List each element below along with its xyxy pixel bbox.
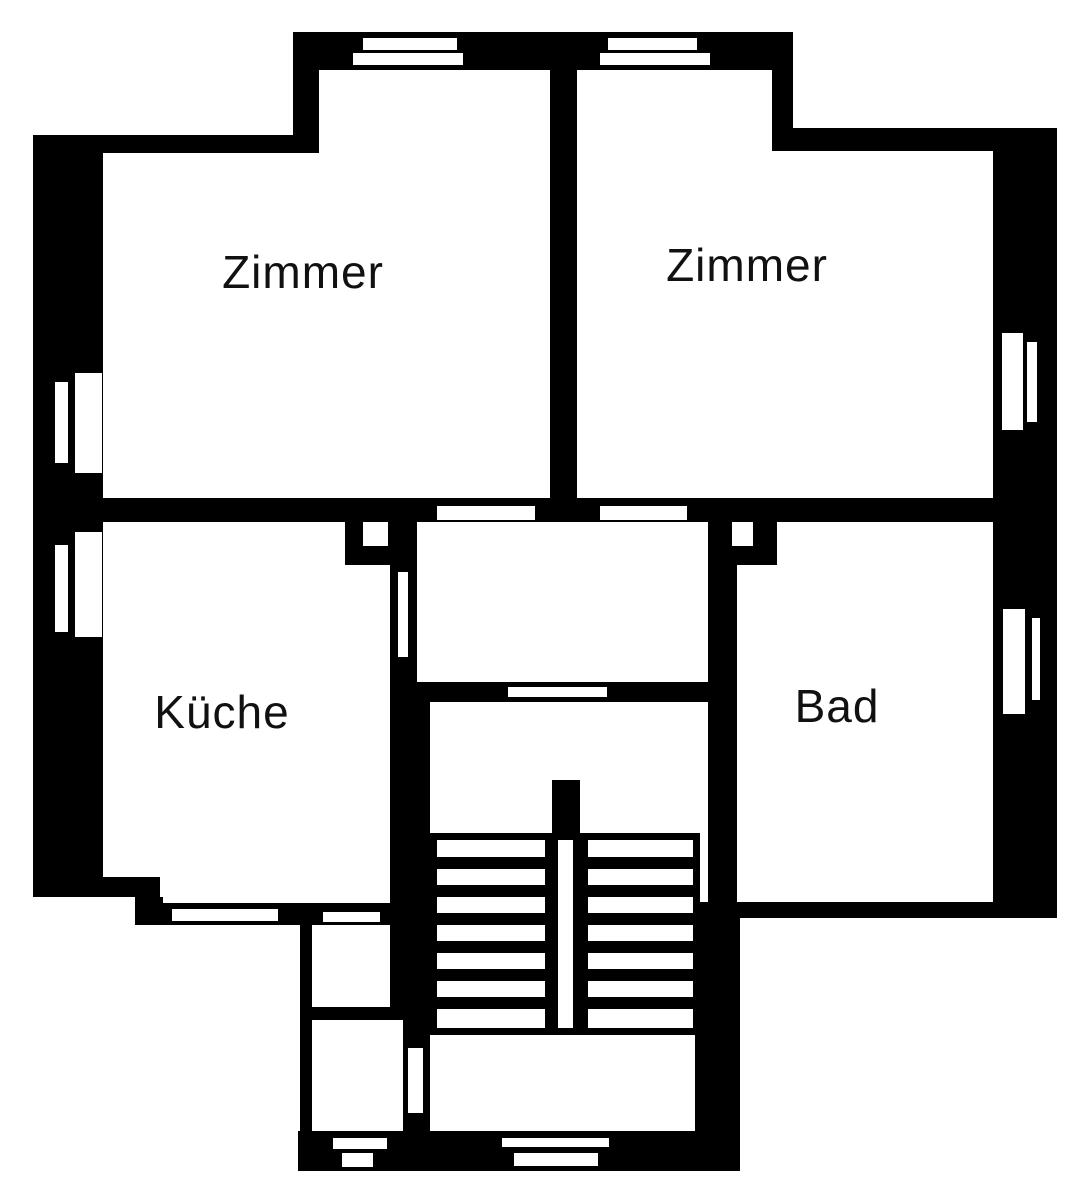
- window-right-upper-inner: [1002, 333, 1023, 430]
- wall-left-outer: [33, 135, 103, 897]
- stair-tread-line: [588, 969, 693, 981]
- door-vestibule-entrance-inner: [342, 1153, 373, 1167]
- stair-tread-line: [588, 941, 693, 953]
- wall-right-outer: [993, 128, 1057, 918]
- wall-vestibule-divider: [300, 1007, 404, 1020]
- stair-tread-line: [437, 941, 545, 953]
- door-zimmer-left: [437, 506, 535, 520]
- stair-frame-mid-right: [573, 833, 588, 1035]
- room-label-kueche: Küche: [154, 685, 289, 739]
- stair-frame-left: [430, 833, 437, 1035]
- wall-stair-west-upper: [390, 702, 430, 1020]
- window-left-upper-inner: [75, 373, 102, 473]
- room-label-zimmer-right: Zimmer: [666, 238, 828, 292]
- window-right-lower-inner: [1003, 609, 1025, 714]
- door-kueche: [398, 572, 408, 657]
- wall-zimmer-divider: [550, 70, 577, 498]
- door-vestibule-stairs: [408, 1048, 423, 1113]
- floor-plan: Zimmer Zimmer Küche Bad: [0, 0, 1085, 1200]
- wall-zimmer-bottom: [103, 498, 993, 522]
- wall-bad-west: [708, 565, 737, 918]
- door-vestibule-entrance-outer: [333, 1138, 387, 1149]
- window-left-lower-outer: [55, 545, 68, 632]
- window-top-right-inner: [600, 53, 710, 65]
- wall-protrusion-left: [293, 32, 319, 135]
- stair-frame-top: [430, 833, 700, 840]
- wall-bad-south: [700, 902, 993, 918]
- room-label-zimmer-left: Zimmer: [222, 245, 384, 299]
- wall-right-top: [772, 128, 997, 151]
- stair-tread-line: [437, 913, 545, 925]
- door-zimmer-right: [600, 506, 687, 520]
- stair-tread-line: [588, 997, 693, 1009]
- stair-tread-line: [437, 857, 545, 869]
- window-top-right-outer: [608, 38, 697, 50]
- window-left-lower-inner: [75, 532, 102, 637]
- stair-frame-bottom: [430, 1028, 700, 1035]
- stair-tread-line: [588, 885, 693, 897]
- wall-vestibule-west: [300, 925, 312, 1131]
- stair-tread-line: [588, 913, 693, 925]
- stair-tread-line: [437, 997, 545, 1009]
- stair-frame-right: [693, 833, 700, 1035]
- window-top-left-outer: [363, 38, 457, 50]
- window-top-left-inner: [353, 53, 463, 65]
- shaft-left: [363, 522, 388, 546]
- window-kueche-south: [172, 909, 278, 921]
- window-right-lower-outer: [1032, 618, 1040, 700]
- room-label-bad: Bad: [795, 679, 880, 733]
- window-left-upper-outer: [55, 382, 68, 463]
- stair-tread-line: [437, 885, 545, 897]
- stair-divider-stub: [552, 780, 580, 833]
- stair-tread-line: [437, 969, 545, 981]
- door-kueche-vestibule: [323, 912, 380, 922]
- stair-tread-line: [588, 857, 693, 869]
- window-right-upper-outer: [1027, 342, 1037, 422]
- shaft-right: [732, 522, 753, 546]
- stair-frame-mid-left: [545, 833, 558, 1035]
- wall-left-step-1: [103, 877, 160, 897]
- door-hall-stairs: [508, 687, 607, 697]
- door-main-entrance-inner: [514, 1153, 598, 1166]
- door-main-entrance-outer: [502, 1138, 609, 1147]
